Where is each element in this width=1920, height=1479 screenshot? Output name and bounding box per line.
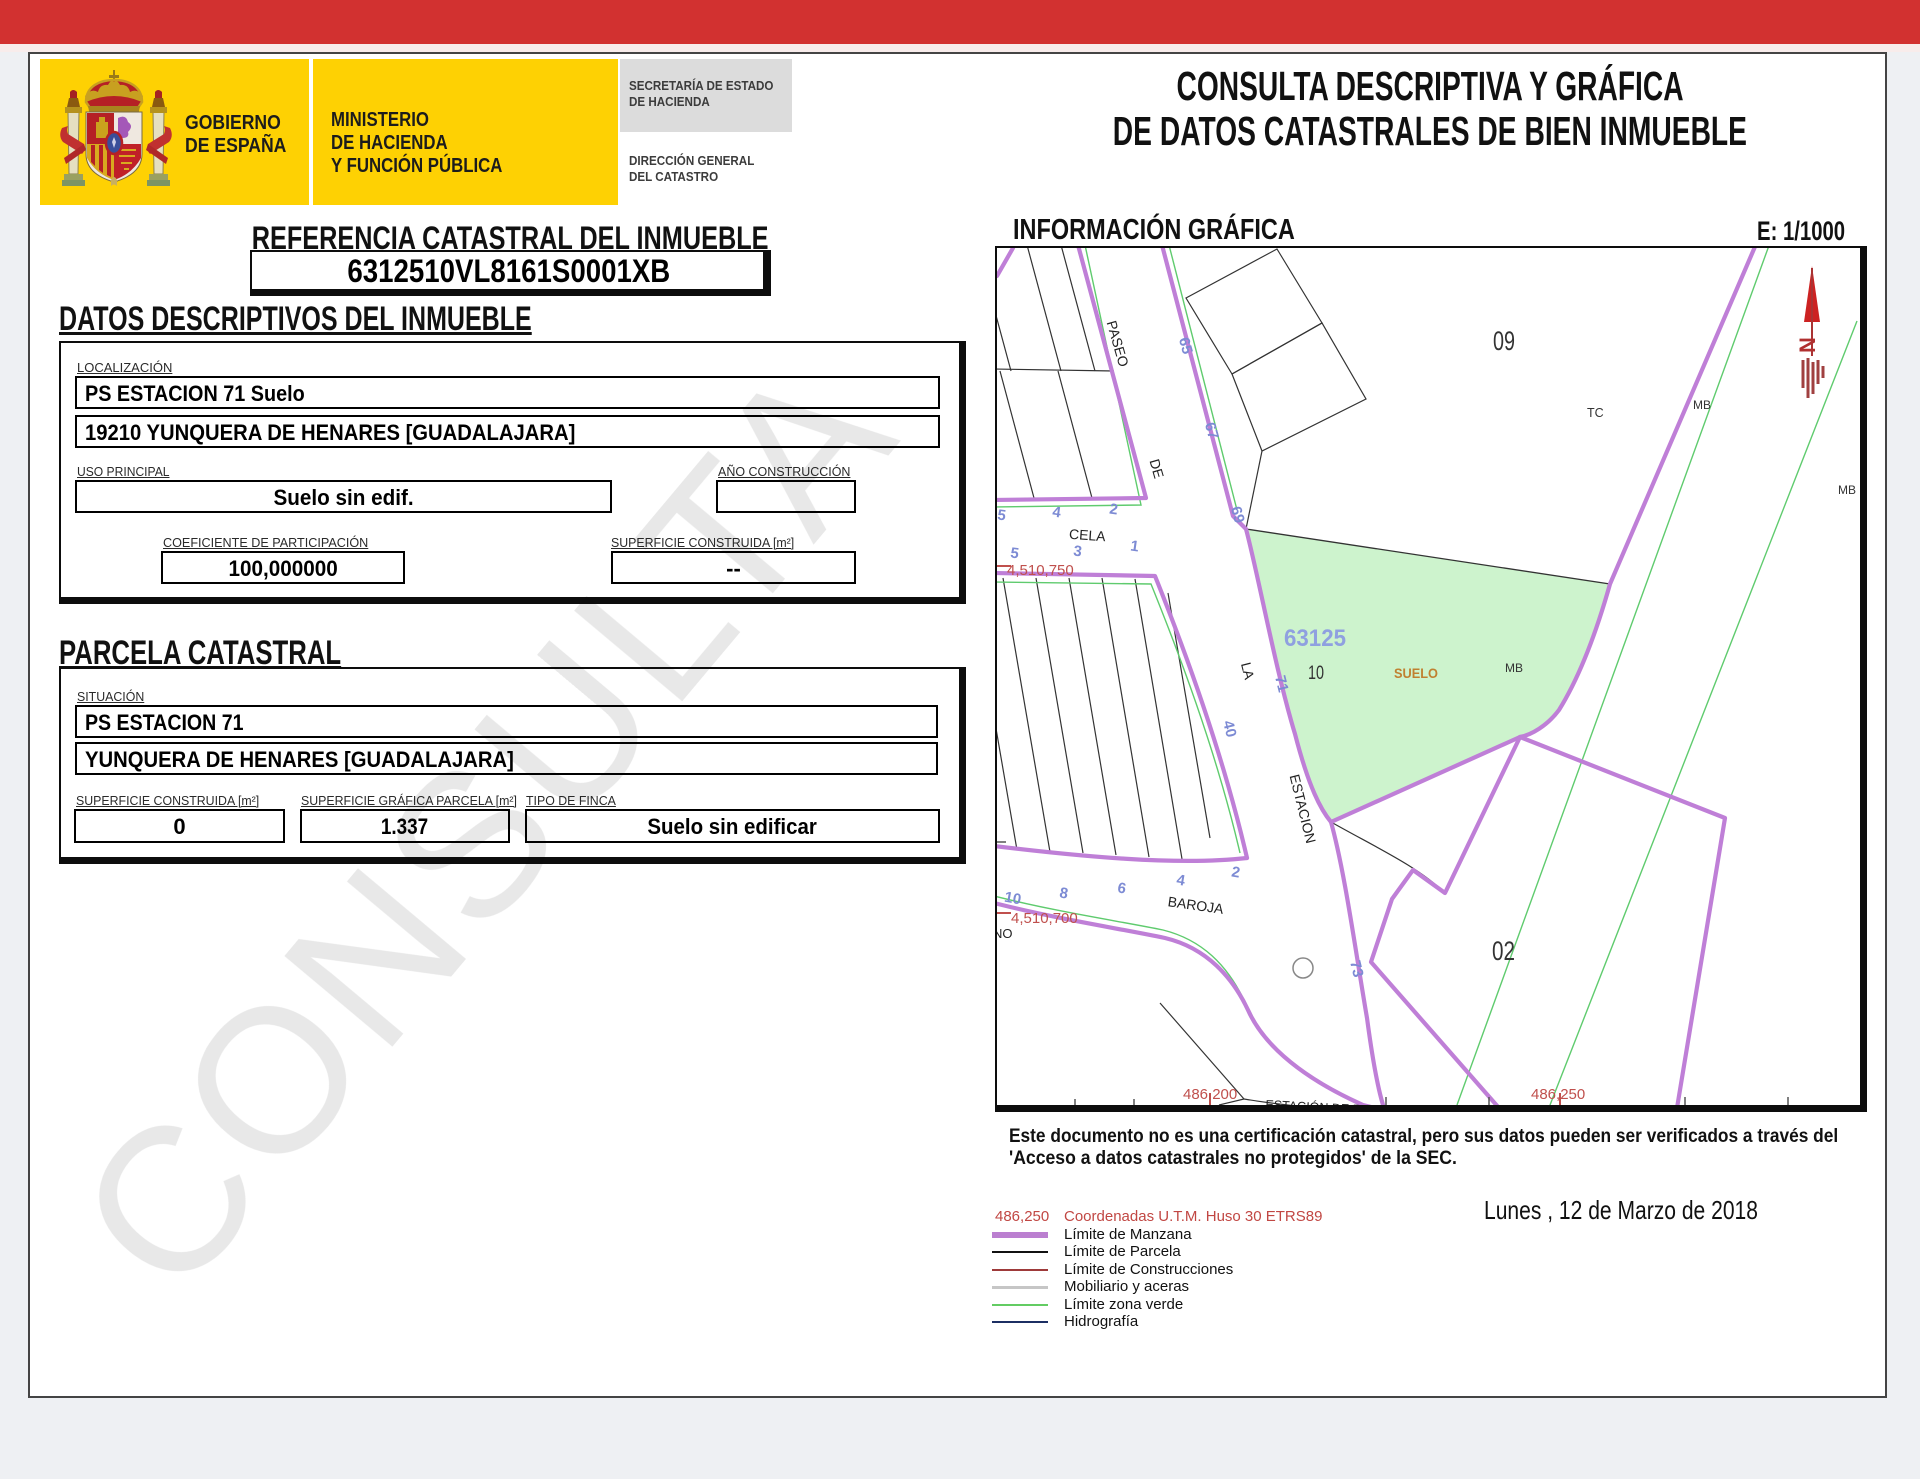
svg-text:63125: 63125 — [1284, 625, 1346, 652]
svg-text:65: 65 — [1175, 335, 1196, 356]
svg-text:69: 69 — [1227, 504, 1248, 525]
svg-text:5: 5 — [1009, 545, 1020, 563]
svg-text:N: N — [1795, 337, 1820, 353]
svg-text:TC: TC — [1587, 406, 1604, 420]
svg-text:4,510,700: 4,510,700 — [1011, 910, 1078, 927]
svg-text:LA: LA — [1238, 661, 1258, 682]
svg-text:MB: MB — [1693, 398, 1711, 412]
svg-text:1: 1 — [1129, 538, 1140, 556]
svg-text:73: 73 — [1346, 959, 1367, 979]
svg-text:4: 4 — [1175, 871, 1187, 889]
svg-text:MB: MB — [1505, 661, 1523, 675]
svg-text:2: 2 — [1108, 501, 1119, 519]
svg-text:8: 8 — [1058, 884, 1069, 902]
svg-text:5: 5 — [997, 507, 1007, 525]
svg-text:2: 2 — [1230, 863, 1241, 881]
svg-text:02: 02 — [1492, 936, 1515, 966]
svg-text:BAROJA: BAROJA — [1167, 893, 1225, 917]
svg-text:10: 10 — [1003, 889, 1022, 909]
svg-text:4: 4 — [1051, 504, 1062, 522]
svg-text:NO: NO — [997, 926, 1013, 941]
svg-text:MB: MB — [1838, 483, 1856, 497]
svg-text:10: 10 — [1308, 663, 1324, 684]
svg-text:486,200: 486,200 — [1183, 1086, 1237, 1103]
svg-text:3: 3 — [1072, 543, 1083, 561]
svg-text:09: 09 — [1493, 326, 1515, 356]
svg-text:486,250: 486,250 — [1531, 1086, 1585, 1103]
svg-text:4,510,750: 4,510,750 — [1007, 562, 1074, 579]
svg-text:6: 6 — [1116, 879, 1127, 897]
svg-text:ESTACIÓN DE RENFE: ESTACIÓN DE RENFE — [1265, 1097, 1395, 1105]
svg-text:DE: DE — [1146, 457, 1167, 480]
svg-text:40: 40 — [1219, 719, 1240, 739]
svg-text:SUELO: SUELO — [1394, 666, 1438, 681]
